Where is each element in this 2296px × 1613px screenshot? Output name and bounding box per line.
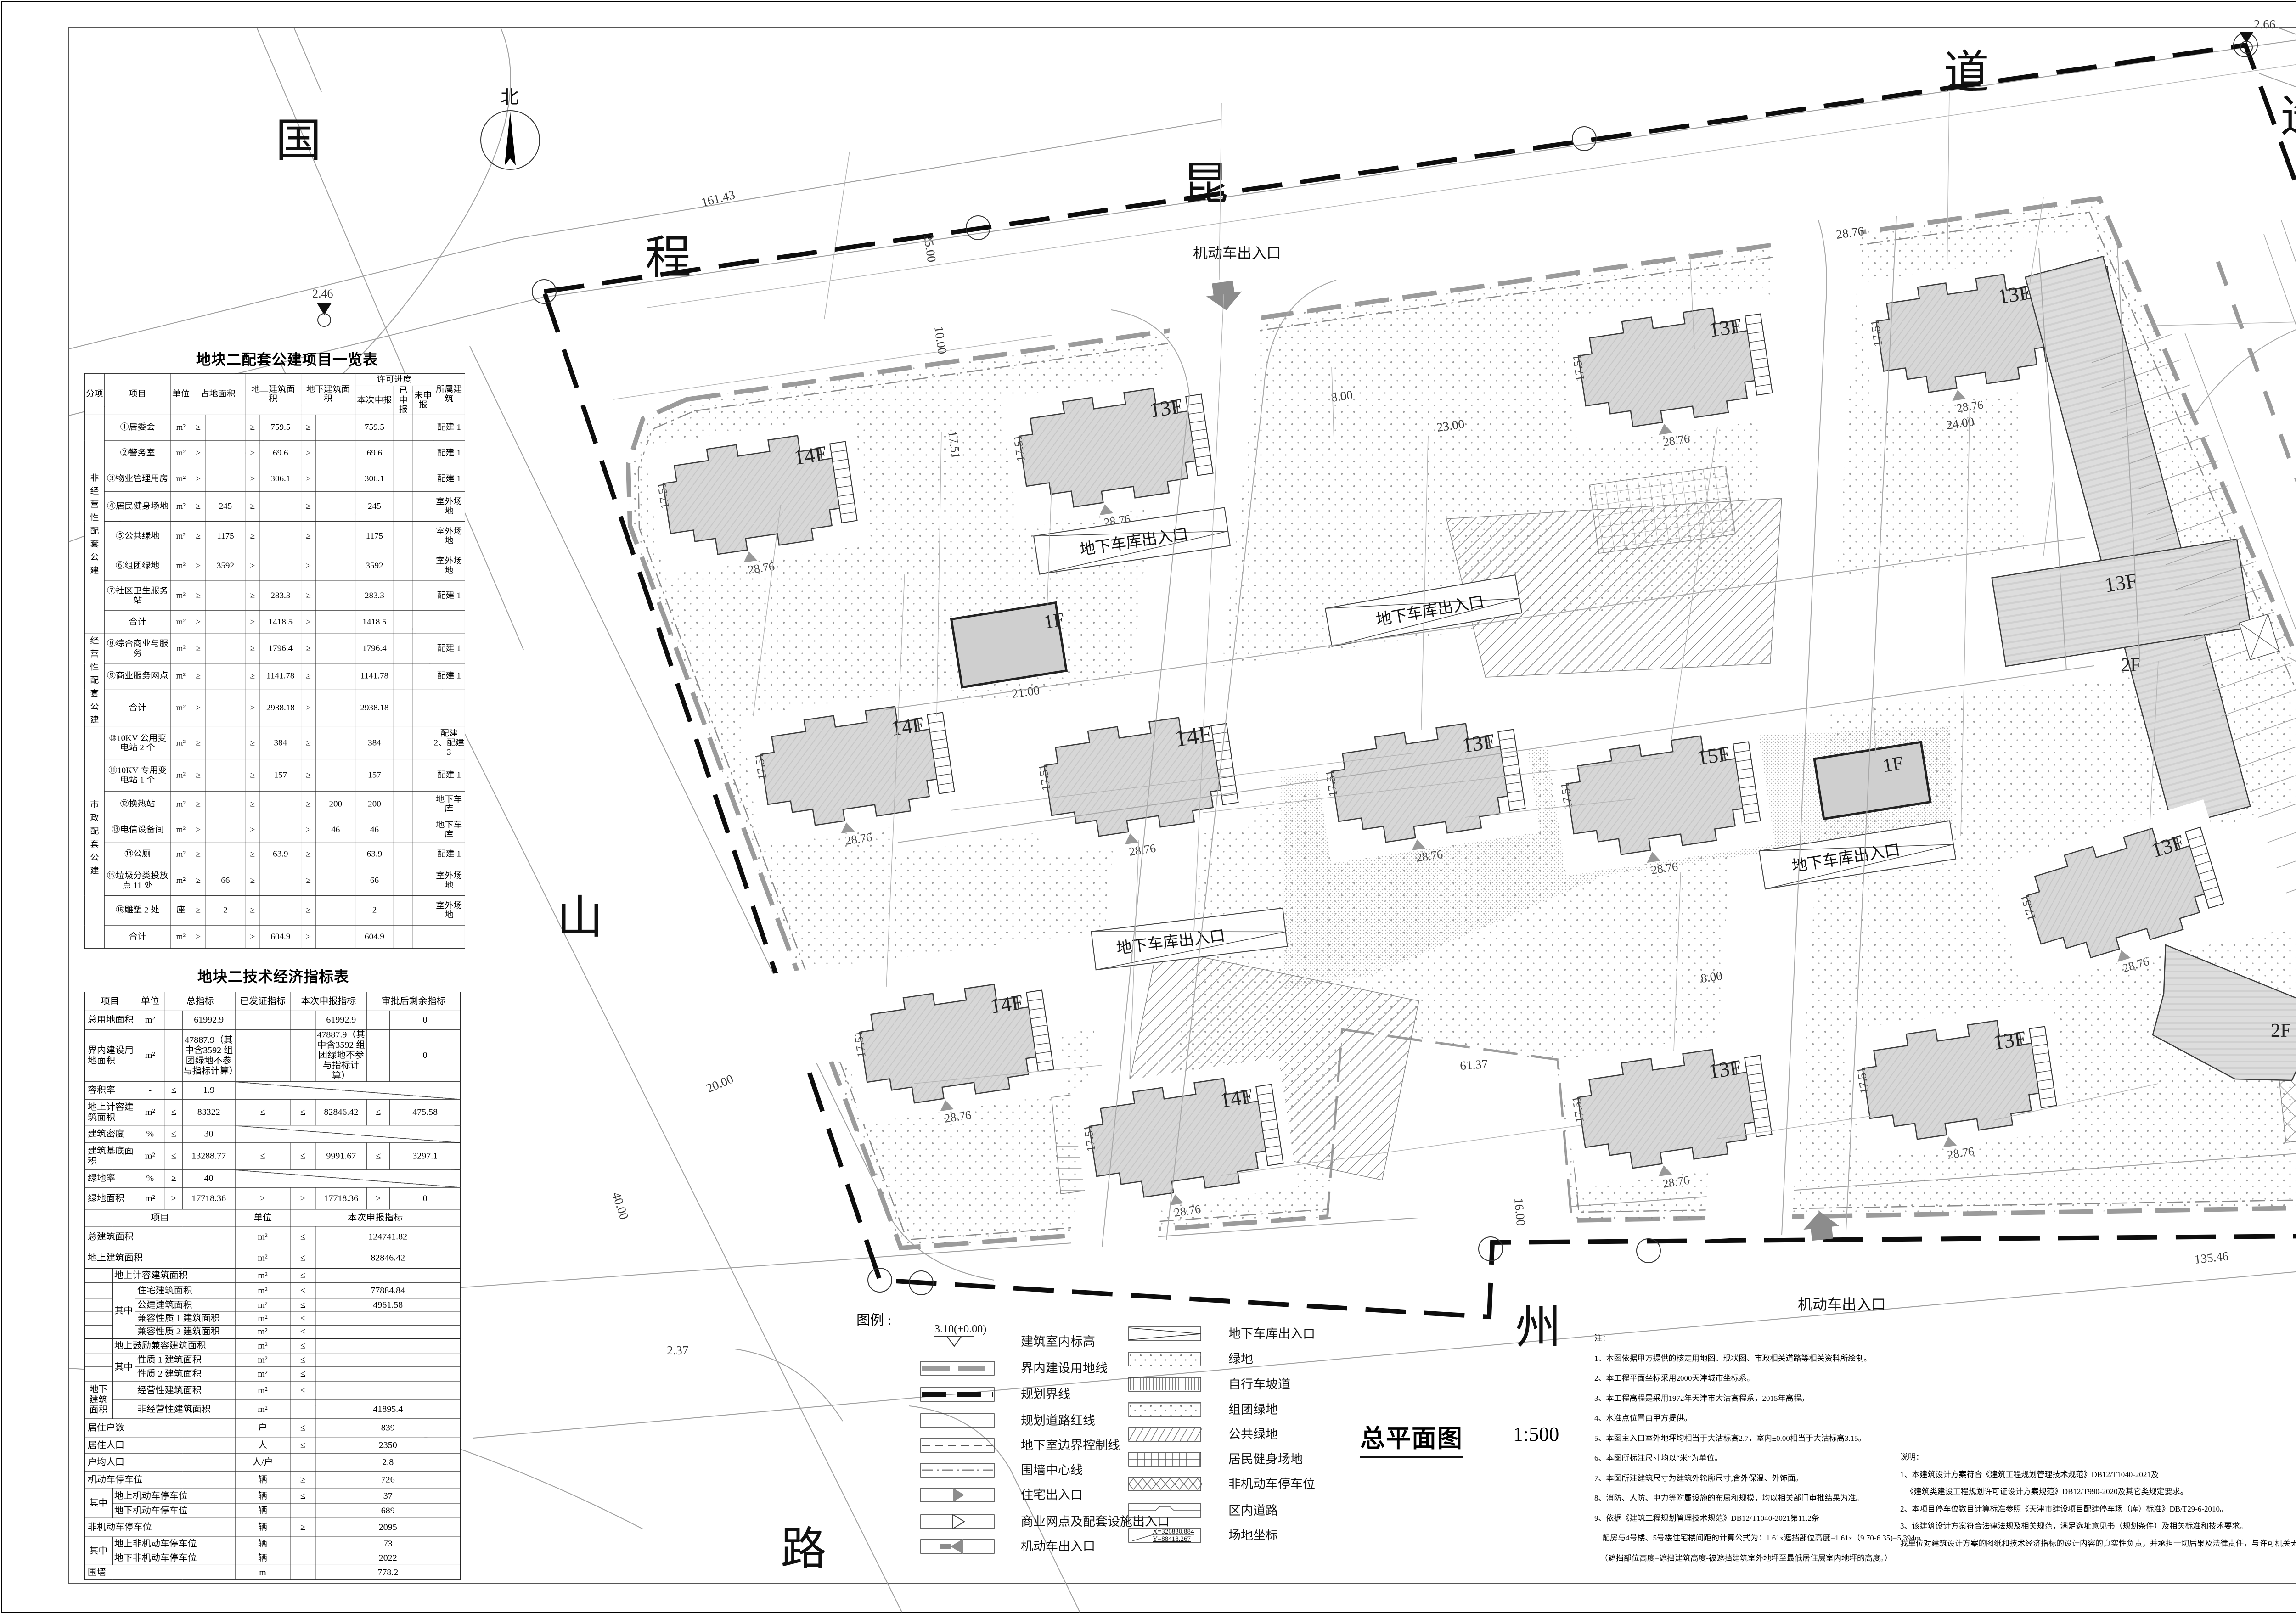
svg-text:非机动车停车位: 非机动车停车位 [1228,1477,1315,1491]
svg-text:绿地: 绿地 [1228,1352,1253,1366]
svg-text:135.46: 135.46 [2194,1249,2229,1266]
svg-text:13F: 13F [1707,1055,1743,1083]
svg-text:规划道路红线: 规划道路红线 [1021,1414,1095,1428]
svg-text:地下室边界控制线: 地下室边界控制线 [1021,1439,1120,1452]
svg-text:2F: 2F [2121,655,2141,676]
svg-text:区内道路: 区内道路 [1228,1504,1278,1517]
svg-text:40.00: 40.00 [609,1191,631,1221]
svg-text:161.43: 161.43 [700,188,736,209]
svg-text:1F: 1F [1042,609,1066,633]
svg-text:迭: 迭 [2280,91,2296,142]
svg-text:围墙中心线: 围墙中心线 [1021,1463,1083,1477]
svg-text:住宅出入口: 住宅出入口 [1021,1488,1083,1502]
svg-text:居民健身场地: 居民健身场地 [1228,1452,1303,1466]
svg-text:14F: 14F [989,990,1024,1018]
svg-text:界内建设用地线: 界内建设用地线 [1021,1361,1108,1375]
svg-text:北: 北 [501,87,519,107]
svg-text:14F: 14F [792,441,828,469]
svg-text:13F: 13F [1460,729,1496,757]
svg-text:14F: 14F [1218,1084,1254,1112]
svg-text:场地坐标: 场地坐标 [1228,1529,1278,1542]
svg-text:25.00: 25.00 [921,234,939,263]
svg-text:建筑室内标高: 建筑室内标高 [1021,1335,1095,1349]
svg-text:机动车出入口: 机动车出入口 [1798,1296,1886,1313]
svg-text:自行车坡道: 自行车坡道 [1228,1377,1290,1391]
svg-text:2.66: 2.66 [2254,17,2275,31]
svg-text:地下车库出入口: 地下车库出入口 [1228,1327,1315,1341]
svg-text:2F: 2F [2271,1020,2291,1041]
svg-text:13F: 13F [1148,394,1184,422]
svg-text:国: 国 [276,115,321,166]
svg-text:组团绿地: 组团绿地 [1228,1403,1278,1416]
svg-text:商业网点及配套设施出入口: 商业网点及配套设施出入口 [1021,1515,1170,1529]
svg-text:山: 山 [557,892,603,943]
svg-text:2.46: 2.46 [312,287,333,300]
svg-text:X=326830.884: X=326830.884 [1153,1528,1194,1535]
svg-text:61.37: 61.37 [1459,1057,1488,1073]
svg-text:机动车出入口: 机动车出入口 [1021,1540,1095,1553]
svg-text:Y=88418.267: Y=88418.267 [1153,1535,1191,1543]
svg-text:1F: 1F [1881,753,1905,776]
svg-text:20.00: 20.00 [704,1072,736,1095]
svg-text:昆: 昆 [1182,159,1228,210]
svg-text:州: 州 [1515,1302,1561,1353]
svg-text:14F: 14F [1173,721,1214,752]
svg-text:14F: 14F [889,712,925,740]
svg-text:公共绿地: 公共绿地 [1228,1428,1278,1441]
svg-text:路: 路 [781,1524,827,1575]
svg-text:机动车出入口: 机动车出入口 [1193,245,1281,261]
svg-text:程: 程 [645,232,691,283]
svg-text:16.00: 16.00 [1512,1197,1528,1226]
svg-text:3.10(±0.00): 3.10(±0.00) [934,1323,986,1335]
svg-text:13F: 13F [1992,1026,2027,1054]
svg-text:规划界线: 规划界线 [1021,1388,1070,1401]
svg-text:15F: 15F [1695,742,1731,770]
svg-text:13F: 13F [1707,314,1743,342]
svg-text:道: 道 [1943,47,1989,98]
svg-text:2.37: 2.37 [667,1343,688,1357]
